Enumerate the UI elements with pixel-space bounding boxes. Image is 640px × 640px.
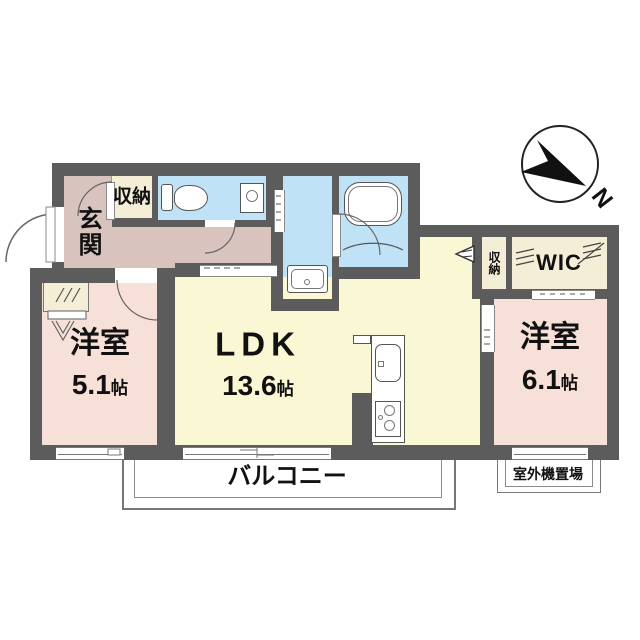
bedroom-left-door-arc [117,280,157,320]
closet-base-bar [48,311,86,319]
bedroom-left-size: 5.1帖 [72,371,128,399]
bedroom-left-label: 洋室 [70,329,130,359]
ldk-size: 13.6帖 [222,372,294,400]
ldk-label: LDK [215,328,301,361]
bedroom-right-size: 6.1帖 [522,366,578,394]
toilet-door-arc [205,223,235,253]
wic-label: WIC [536,252,582,274]
outdoor-unit-label: 室外機置場 [513,467,583,481]
window-pane-markers [108,447,274,458]
entrance-label: 玄関 [75,206,99,258]
plan-annotations: N [0,0,640,640]
front-door-leaf [46,207,55,262]
storage-entry-arrow-icon [456,246,474,262]
storage-right-label: 収納 [488,251,500,275]
closet-hatch-icon [56,288,80,302]
bathtub-curve [343,243,403,250]
bedroom-right-label: 洋室 [520,323,580,353]
compass-icon: N [521,126,618,214]
balcony-label: バルコニー [227,465,347,489]
hall-storage-label: 収納 [113,188,151,207]
floorplan-canvas: N 玄関 収納 洋室 5.1帖 LDK 13.6帖 洋室 6.1帖 収納 WIC… [0,0,640,640]
